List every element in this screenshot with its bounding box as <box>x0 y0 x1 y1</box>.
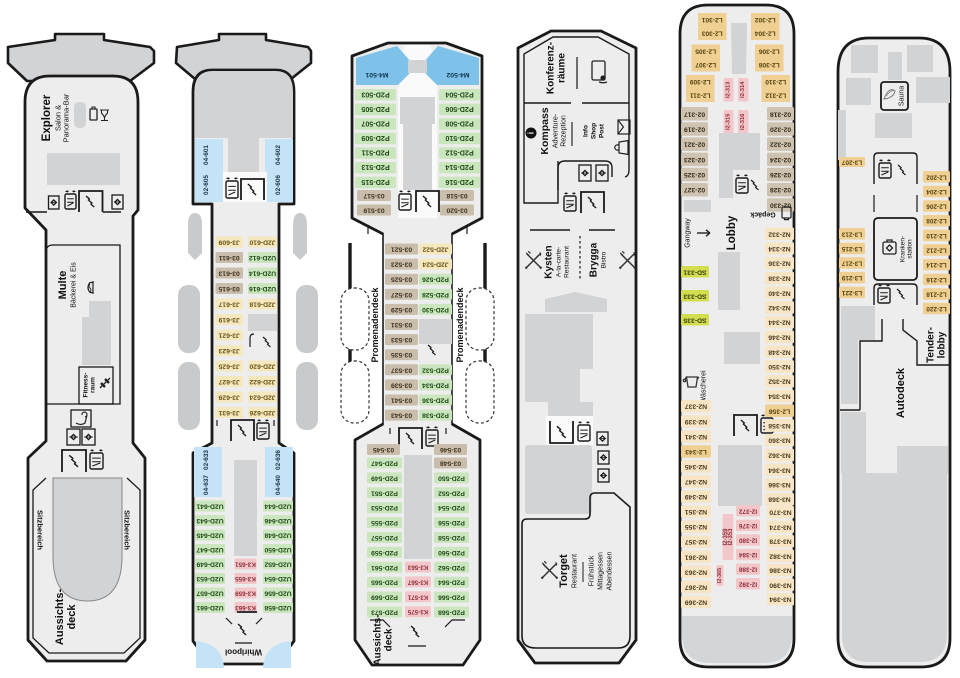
svg-text:N3-360: N3-360 <box>768 437 791 444</box>
svg-text:J3-631: J3-631 <box>218 409 239 416</box>
svg-text:Konferenz-: Konferenz- <box>546 42 557 94</box>
svg-text:J2D-524: J2D-524 <box>422 261 448 268</box>
svg-text:J3-629: J3-629 <box>218 394 239 401</box>
svg-text:P2D-561: P2D-561 <box>371 564 398 571</box>
svg-text:03-548: 03-548 <box>440 460 461 467</box>
svg-text:U2D-614: U2D-614 <box>249 270 276 277</box>
svg-text:03-611: 03-611 <box>219 254 240 261</box>
svg-text:N3-358: N3-358 <box>768 422 791 429</box>
svg-text:N2-348: N2-348 <box>768 348 791 355</box>
svg-text:L2-202: L2-202 <box>926 173 947 180</box>
svg-text:N2-344: N2-344 <box>768 319 791 326</box>
svg-text:U2D-653: U2D-653 <box>196 575 223 582</box>
svg-text:L3-217: L3-217 <box>841 260 862 267</box>
svg-text:03-519: 03-519 <box>363 207 384 214</box>
svg-text:N2-338: N2-338 <box>768 275 791 282</box>
svg-text:U2D-657: U2D-657 <box>196 590 223 597</box>
svg-text:03-541: 03-541 <box>391 397 412 404</box>
svg-text:P2D-568: P2D-568 <box>438 609 465 616</box>
svg-text:I2-316: I2-316 <box>740 113 746 130</box>
svg-text:K3-563: K3-563 <box>407 564 428 571</box>
svg-text:Gangway: Gangway <box>685 218 692 248</box>
svg-text:Adventure-: Adventure- <box>553 113 560 148</box>
svg-text:02-327: 02-327 <box>684 186 705 193</box>
svg-text:L3-221: L3-221 <box>841 289 862 296</box>
svg-text:P2D-559: P2D-559 <box>371 549 398 556</box>
svg-text:N3-368: N3-368 <box>768 496 791 503</box>
svg-text:Promenadendeck: Promenadendeck <box>370 286 380 362</box>
svg-text:03-521: 03-521 <box>391 246 412 253</box>
svg-text:Mittagessen: Mittagessen <box>598 552 605 590</box>
svg-text:L2-210: L2-210 <box>926 232 947 239</box>
svg-text:02-636: 02-636 <box>275 450 282 470</box>
svg-text:U2D-649: U2D-649 <box>196 561 223 568</box>
svg-text:P2D-536: P2D-536 <box>422 397 449 404</box>
svg-text:K3-571: K3-571 <box>407 593 428 600</box>
svg-text:J2D-522: J2D-522 <box>422 246 448 253</box>
svg-text:N2-341: N2-341 <box>685 433 708 440</box>
svg-text:Sitzbereich: Sitzbereich <box>123 510 132 550</box>
svg-text:P2D-552: P2D-552 <box>438 489 465 496</box>
svg-text:J2D-610: J2D-610 <box>249 239 275 246</box>
svg-text:03-543: 03-543 <box>391 412 412 419</box>
svg-text:U2D-656: U2D-656 <box>264 590 291 597</box>
svg-text:L2-312: L2-312 <box>765 92 786 99</box>
svg-text:L2-305: L2-305 <box>695 48 716 55</box>
svg-text:J3-617: J3-617 <box>218 301 239 308</box>
svg-text:03-615: 03-615 <box>218 285 239 292</box>
svg-text:Tender-: Tender- <box>926 327 937 363</box>
svg-text:P2D-534: P2D-534 <box>422 381 449 388</box>
svg-text:N2-339: N2-339 <box>685 418 708 425</box>
svg-text:N3-386: N3-386 <box>769 567 792 574</box>
svg-text:SD-335: SD-335 <box>683 316 706 323</box>
svg-text:U2D-641: U2D-641 <box>196 503 223 510</box>
svg-text:U2D-654: U2D-654 <box>264 575 291 582</box>
svg-text:L2-356: L2-356 <box>769 407 791 414</box>
svg-text:02-326: 02-326 <box>770 171 791 178</box>
svg-text:Sauna: Sauna <box>899 86 906 106</box>
svg-text:Kompass: Kompass <box>539 107 551 154</box>
svg-text:N3-374: N3-374 <box>769 523 792 530</box>
svg-text:02-321: 02-321 <box>684 141 705 148</box>
svg-text:I2-388: I2-388 <box>738 566 757 573</box>
svg-text:I2-313: I2-313 <box>726 81 732 98</box>
svg-text:03-533: 03-533 <box>391 336 412 343</box>
svg-text:N3-366: N3-366 <box>768 481 791 488</box>
svg-text:P2D-538: P2D-538 <box>422 412 449 419</box>
svg-text:L2-302: L2-302 <box>754 16 775 23</box>
svg-text:Aussichts-: Aussichts- <box>54 589 66 646</box>
svg-text:J2D-618: J2D-618 <box>249 301 275 308</box>
svg-text:P2D-562: P2D-562 <box>438 564 465 571</box>
svg-text:03-613: 03-613 <box>218 270 239 277</box>
svg-text:Promenadendeck: Promenadendeck <box>455 286 465 362</box>
svg-text:M4-501: M4-501 <box>365 71 388 78</box>
svg-text:U2D-645: U2D-645 <box>196 532 223 539</box>
svg-text:P2D-513: P2D-513 <box>361 163 389 172</box>
svg-text:i: i <box>527 132 536 134</box>
svg-text:Wäscherei: Wäscherei <box>701 370 708 404</box>
svg-text:Brygga: Brygga <box>589 242 600 277</box>
svg-text:K3-651: K3-651 <box>235 561 256 568</box>
svg-text:L2-218: L2-218 <box>926 290 947 297</box>
svg-text:N2-361: N2-361 <box>685 553 708 560</box>
svg-text:K3-663: K3-663 <box>235 604 256 611</box>
svg-text:I2-353: I2-353 <box>728 528 734 546</box>
svg-text:U2D-652: U2D-652 <box>264 561 291 568</box>
svg-text:lobby: lobby <box>937 331 948 358</box>
svg-text:U2D-644: U2D-644 <box>264 503 291 510</box>
svg-text:P2D-566: P2D-566 <box>438 594 465 601</box>
svg-text:02-319: 02-319 <box>684 125 705 132</box>
svg-text:J2D-620: J2D-620 <box>249 363 275 370</box>
svg-text:Torget: Torget <box>558 554 570 588</box>
svg-text:N3-378: N3-378 <box>769 538 792 545</box>
svg-text:N2-357: N2-357 <box>685 538 708 545</box>
svg-text:Explorer: Explorer <box>41 94 53 141</box>
svg-text:Post: Post <box>599 123 606 138</box>
svg-text:U2D-658: U2D-658 <box>264 604 291 611</box>
svg-text:J3-623: J3-623 <box>218 347 239 354</box>
svg-text:Lobby: Lobby <box>726 215 738 250</box>
svg-text:Sitzbereich: Sitzbereich <box>36 510 45 550</box>
svg-text:P2D-530: P2D-530 <box>422 306 449 313</box>
svg-text:U2D-643: U2D-643 <box>196 517 223 524</box>
svg-text:Shop: Shop <box>591 123 598 139</box>
svg-text:P2D-516: P2D-516 <box>445 178 473 187</box>
svg-text:P2D-507: P2D-507 <box>361 119 389 128</box>
svg-text:deck: deck <box>384 628 395 651</box>
svg-text:N2-355: N2-355 <box>685 523 708 530</box>
svg-text:03-520: 03-520 <box>446 207 467 214</box>
svg-text:03-529: 03-529 <box>391 306 412 313</box>
svg-text:P2D-569: P2D-569 <box>371 594 398 601</box>
svg-text:J3-625: J3-625 <box>218 363 239 370</box>
svg-text:P2D-510: P2D-510 <box>445 134 473 143</box>
svg-text:P2D-508: P2D-508 <box>445 119 473 128</box>
svg-text:04-601: 04-601 <box>203 145 210 165</box>
svg-text:L2-304: L2-304 <box>754 30 775 37</box>
svg-text:N2-367: N2-367 <box>685 583 708 590</box>
svg-text:P2D-560: P2D-560 <box>438 549 465 556</box>
svg-text:raum: raum <box>90 377 97 393</box>
svg-text:L2-303: L2-303 <box>701 30 722 37</box>
svg-text:P2D-558: P2D-558 <box>438 534 465 541</box>
svg-text:L2-343: L2-343 <box>685 448 707 455</box>
svg-text:02-606: 02-606 <box>275 175 282 195</box>
svg-text:U2D-616: U2D-616 <box>249 285 276 292</box>
svg-text:N3-364: N3-364 <box>768 466 791 473</box>
svg-text:P2D-553: P2D-553 <box>371 504 398 511</box>
svg-text:U2D-650: U2D-650 <box>264 546 291 553</box>
svg-text:N2-347: N2-347 <box>685 478 708 485</box>
svg-text:Bäckerei & Eis: Bäckerei & Eis <box>71 262 78 308</box>
svg-text:L2-308: L2-308 <box>758 61 779 68</box>
svg-text:J3-621: J3-621 <box>218 332 239 339</box>
svg-text:K3-655: K3-655 <box>235 575 256 582</box>
svg-text:P2D-550: P2D-550 <box>438 474 465 481</box>
svg-text:J3-627: J3-627 <box>218 378 239 385</box>
svg-text:L2-309: L2-309 <box>689 78 710 85</box>
svg-text:P2D-554: P2D-554 <box>438 504 465 511</box>
svg-text:02-322: 02-322 <box>770 141 791 148</box>
svg-text:L2-310: L2-310 <box>765 78 786 85</box>
svg-text:Info: Info <box>583 125 590 137</box>
svg-text:L2-307: L2-307 <box>695 61 716 68</box>
svg-text:A-la-carte-: A-la-carte- <box>556 247 563 277</box>
svg-text:Gepäck: Gepäck <box>750 211 775 218</box>
svg-text:N2-334: N2-334 <box>768 245 791 252</box>
svg-text:03-545: 03-545 <box>373 446 394 453</box>
svg-text:Autodeck: Autodeck <box>895 367 907 418</box>
svg-text:J2D-626: J2D-626 <box>249 409 275 416</box>
svg-text:N3-362: N3-362 <box>768 452 791 459</box>
svg-text:N3-354: N3-354 <box>768 393 791 400</box>
svg-text:L2-208: L2-208 <box>926 217 947 224</box>
svg-text:N3-394: N3-394 <box>769 596 792 603</box>
svg-text:Abendessen: Abendessen <box>607 551 614 590</box>
svg-text:I2-372: I2-372 <box>738 507 757 514</box>
svg-text:02-318: 02-318 <box>770 110 791 117</box>
svg-text:räume: räume <box>557 53 568 83</box>
svg-text:04-637: 04-637 <box>203 475 210 495</box>
svg-text:02-323: 02-323 <box>684 156 705 163</box>
svg-text:P2D-509: P2D-509 <box>361 134 389 143</box>
svg-text:I2-314: I2-314 <box>740 81 746 98</box>
svg-text:Multe: Multe <box>57 271 69 300</box>
svg-text:L2-216: L2-216 <box>926 276 947 283</box>
svg-text:03-539: 03-539 <box>391 381 412 388</box>
svg-text:J2D-622: J2D-622 <box>249 378 275 385</box>
svg-text:P2D-564: P2D-564 <box>438 579 465 586</box>
svg-text:L2-206: L2-206 <box>926 203 947 210</box>
svg-text:N3-382: N3-382 <box>769 552 792 559</box>
svg-text:L3-213: L3-213 <box>841 230 862 237</box>
svg-text:N2-337: N2-337 <box>685 403 708 410</box>
svg-text:P2D-515: P2D-515 <box>361 178 389 187</box>
svg-text:U2D-612: U2D-612 <box>249 254 276 261</box>
svg-text:04-640: 04-640 <box>275 475 282 495</box>
svg-text:N2-363: N2-363 <box>685 568 708 575</box>
svg-text:U2D-646: U2D-646 <box>264 517 291 524</box>
svg-text:P2D-505: P2D-505 <box>361 105 389 114</box>
svg-text:N3-370: N3-370 <box>769 509 792 516</box>
svg-text:K3-659: K3-659 <box>235 590 256 597</box>
svg-text:02-324: 02-324 <box>770 156 791 163</box>
svg-text:03-535: 03-535 <box>391 351 412 358</box>
svg-text:02-605: 02-605 <box>203 175 210 195</box>
svg-text:I2-392: I2-392 <box>738 580 757 587</box>
svg-text:P2D-555: P2D-555 <box>371 519 398 526</box>
svg-text:SD-331: SD-331 <box>683 268 706 275</box>
svg-text:station: station <box>907 239 914 259</box>
svg-text:I2-380: I2-380 <box>738 537 757 544</box>
svg-text:J2D-624: J2D-624 <box>249 394 275 401</box>
svg-text:L2-204: L2-204 <box>926 188 947 195</box>
svg-text:Whirlpool: Whirlpool <box>225 648 262 657</box>
svg-text:P2D-556: P2D-556 <box>438 519 465 526</box>
svg-text:N2-345: N2-345 <box>685 463 708 470</box>
svg-text:Kranken-: Kranken- <box>900 236 907 262</box>
svg-text:L2-301: L2-301 <box>701 16 722 23</box>
svg-text:Rezeption: Rezeption <box>561 115 568 147</box>
svg-text:Restaurant: Restaurant <box>572 554 579 588</box>
svg-text:L3-207: L3-207 <box>841 159 862 166</box>
svg-text:N2-352: N2-352 <box>768 378 791 385</box>
svg-text:Restaurant: Restaurant <box>564 246 571 278</box>
svg-text:I2-376: I2-376 <box>738 522 757 529</box>
svg-text:P2D-506: P2D-506 <box>445 105 473 114</box>
svg-text:U2D-648: U2D-648 <box>264 532 291 539</box>
svg-text:I2-315: I2-315 <box>726 113 732 130</box>
svg-text:Kysten: Kysten <box>544 245 555 278</box>
svg-text:L2-306: L2-306 <box>758 48 779 55</box>
svg-text:SD-333: SD-333 <box>683 292 706 299</box>
svg-text:N2-346: N2-346 <box>768 334 791 341</box>
svg-text:L3-219: L3-219 <box>841 274 862 281</box>
svg-text:P2D-511: P2D-511 <box>362 149 390 158</box>
svg-text:K3-567: K3-567 <box>407 578 428 585</box>
svg-text:N3-390: N3-390 <box>769 581 792 588</box>
svg-text:J3-619: J3-619 <box>218 316 239 323</box>
svg-text:P2D-549: P2D-549 <box>371 474 398 481</box>
svg-text:P2D-503: P2D-503 <box>361 90 389 99</box>
svg-text:N2-332: N2-332 <box>768 230 791 237</box>
svg-text:02-633: 02-633 <box>203 450 210 470</box>
svg-text:04-602: 04-602 <box>275 145 282 165</box>
svg-text:02-317: 02-317 <box>684 110 705 117</box>
svg-text:02-328: 02-328 <box>770 186 791 193</box>
svg-text:03-517: 03-517 <box>363 192 384 199</box>
svg-text:N2-336: N2-336 <box>768 260 791 267</box>
svg-text:P2D-551: P2D-551 <box>371 489 398 496</box>
svg-text:I2-384: I2-384 <box>738 551 757 558</box>
svg-text:U2D-647: U2D-647 <box>196 546 223 553</box>
svg-text:L3-215: L3-215 <box>841 245 862 252</box>
svg-text:L2-214: L2-214 <box>926 261 947 268</box>
svg-text:N2-351: N2-351 <box>685 508 708 515</box>
svg-text:P2D-547: P2D-547 <box>371 460 398 467</box>
svg-text:P2D-528: P2D-528 <box>422 291 449 298</box>
svg-text:Bistro: Bistro <box>601 251 608 268</box>
svg-text:P2D-532: P2D-532 <box>422 366 449 373</box>
svg-text:I2-365: I2-365 <box>717 568 723 583</box>
svg-text:L2-220: L2-220 <box>926 305 947 312</box>
svg-text:J3-609: J3-609 <box>218 239 239 246</box>
svg-text:N2-350: N2-350 <box>768 363 791 370</box>
svg-text:K3-575: K3-575 <box>407 608 428 615</box>
svg-text:N2-369: N2-369 <box>685 598 708 605</box>
svg-text:02-325: 02-325 <box>684 171 705 178</box>
svg-text:03-518: 03-518 <box>446 192 467 199</box>
svg-text:03-527: 03-527 <box>391 291 412 298</box>
svg-text:U2D-661: U2D-661 <box>196 604 223 611</box>
svg-text:03-525: 03-525 <box>391 276 412 283</box>
svg-text:Frühstück: Frühstück <box>589 555 596 586</box>
svg-text:Panorama-Bar: Panorama-Bar <box>62 93 71 142</box>
svg-text:02-320: 02-320 <box>770 125 791 132</box>
svg-text:P2D-504: P2D-504 <box>445 90 473 99</box>
svg-text:L2-311: L2-311 <box>690 92 711 99</box>
svg-text:03-531: 03-531 <box>391 321 412 328</box>
svg-text:03-537: 03-537 <box>391 366 412 373</box>
svg-text:P2D-512: P2D-512 <box>445 149 473 158</box>
svg-text:N2-349: N2-349 <box>685 493 708 500</box>
svg-text:P2D-526: P2D-526 <box>422 276 449 283</box>
svg-text:deck: deck <box>66 604 78 630</box>
svg-text:P2D-557: P2D-557 <box>371 534 398 541</box>
svg-text:M4-502: M4-502 <box>446 71 469 78</box>
svg-text:P2D-514: P2D-514 <box>445 163 473 172</box>
svg-text:03-546: 03-546 <box>440 446 461 453</box>
svg-text:03-523: 03-523 <box>391 261 412 268</box>
svg-text:Fitness-: Fitness- <box>83 373 90 398</box>
svg-text:N2-340: N2-340 <box>768 289 791 296</box>
svg-text:L2-212: L2-212 <box>926 247 947 254</box>
svg-text:N2-342: N2-342 <box>768 304 791 311</box>
svg-text:P2D-565: P2D-565 <box>371 579 398 586</box>
svg-text:Aussichts-: Aussichts- <box>373 614 384 665</box>
